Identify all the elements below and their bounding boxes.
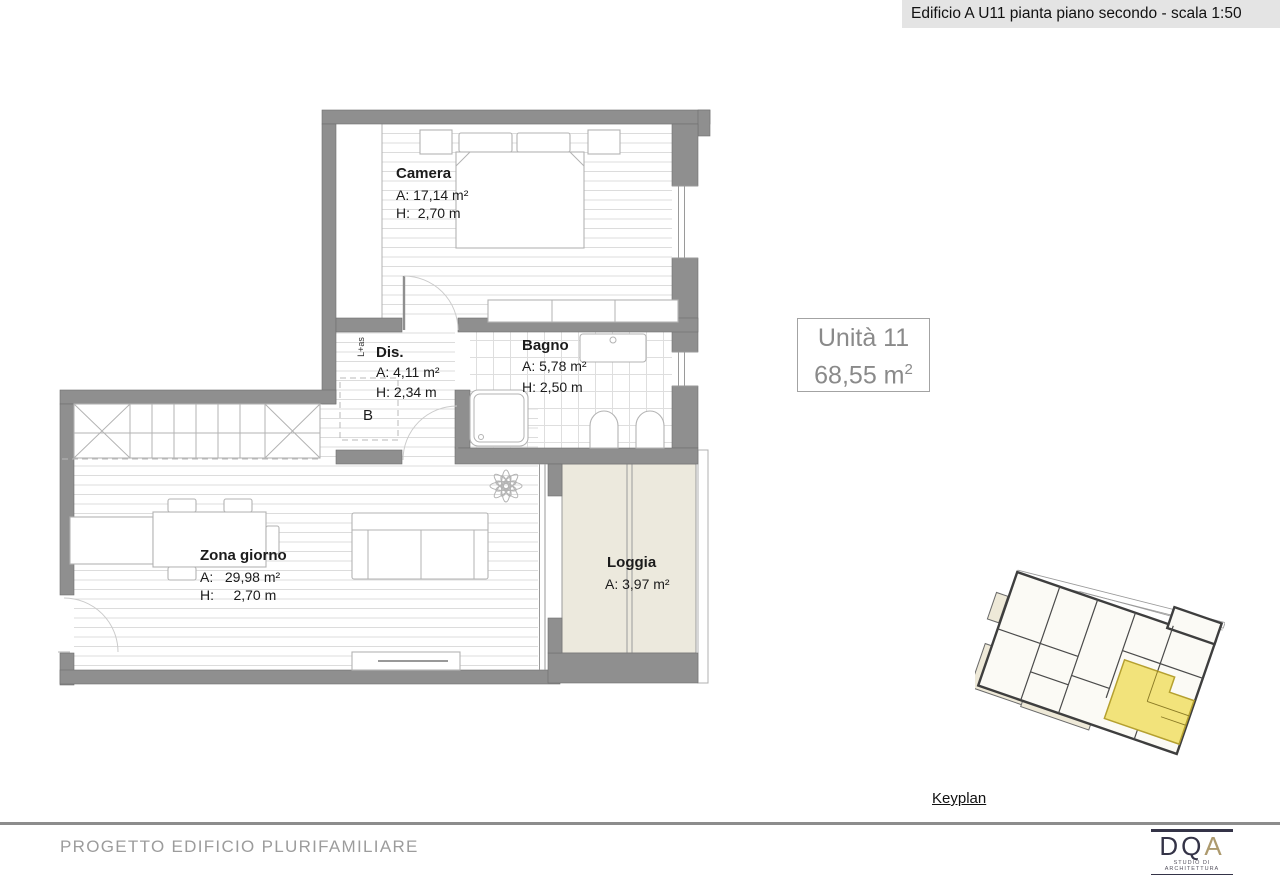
wardrobe	[488, 300, 678, 322]
room-height-bagno: H: 2,50 m	[522, 379, 583, 395]
project-title: PROGETTO EDIFICIO PLURIFAMILIARE	[60, 837, 419, 857]
boiler-label: B	[363, 407, 373, 424]
unit-info-box: Unità 11 68,55 m2	[797, 318, 930, 392]
room-height-dis: H: 2,34 m	[376, 384, 437, 400]
sofa	[352, 513, 488, 579]
bidet	[636, 411, 664, 448]
title-bar: Edificio A U11 pianta piano secondo - sc…	[902, 0, 1280, 28]
footer-rule	[0, 822, 1280, 825]
bed	[456, 152, 584, 248]
room-name-bagno: Bagno	[522, 337, 569, 354]
sheet-title: Edificio A U11 pianta piano secondo - sc…	[902, 5, 1242, 23]
room-area-bagno: A: 5,78 m²	[522, 358, 587, 374]
sink	[580, 334, 646, 362]
closet-label: L+as	[356, 337, 366, 357]
loggia-railing	[698, 450, 708, 683]
room-name-dis: Dis.	[376, 344, 404, 361]
room-area-dis: A: 4,11 m²	[376, 364, 440, 380]
studio-logo: DQA STUDIO DI ARCHITETTURA	[1151, 829, 1233, 875]
room-area-zona-giorno: A: 29,98 m²	[200, 569, 280, 585]
room-name-zona-giorno: Zona giorno	[200, 547, 287, 564]
kitchen-counter	[74, 404, 320, 458]
room-name-loggia: Loggia	[607, 554, 657, 571]
logo-letters: DQA	[1151, 833, 1233, 860]
room-name-camera: Camera	[396, 165, 452, 182]
room-area-camera: A: 17,14 m²	[396, 187, 469, 203]
room-area-loggia: A: 3,97 m²	[605, 576, 670, 592]
wc	[590, 411, 618, 448]
room-height-camera: H: 2,70 m	[396, 205, 461, 221]
room-height-zona-giorno: H: 2,70 m	[200, 587, 276, 603]
keyplan-drawing	[975, 563, 1225, 773]
sheet: Edificio A U11 pianta piano secondo - sc…	[0, 0, 1280, 875]
floor-plan-drawing: Camera A: 17,14 m² H: 2,70 m Dis. A: 4,1…	[50, 95, 730, 705]
unit-area: 68,55 m2	[798, 354, 929, 391]
unit-name: Unità 11	[798, 322, 929, 354]
keyplan-link[interactable]: Keyplan	[932, 790, 986, 807]
logo-tagline: STUDIO DI ARCHITETTURA	[1151, 860, 1233, 875]
